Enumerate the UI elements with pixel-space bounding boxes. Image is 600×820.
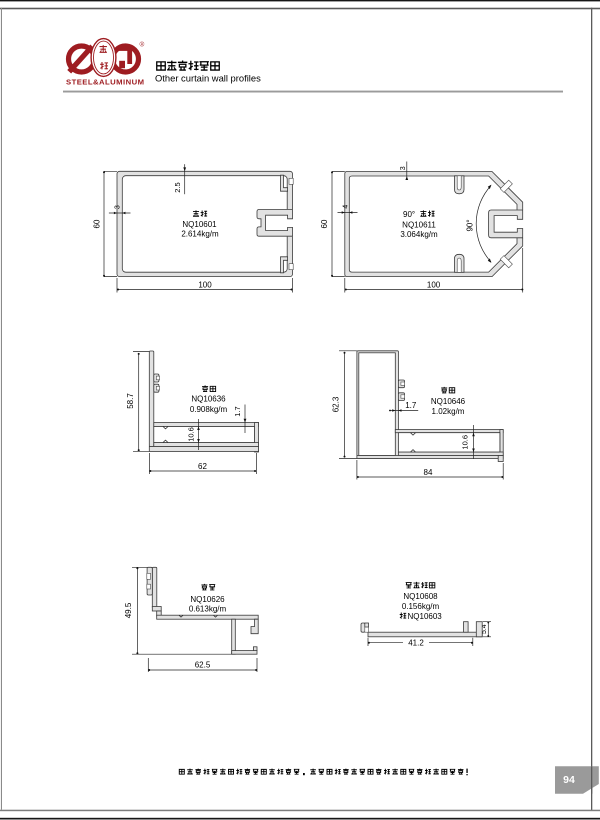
svg-text:84: 84 [424, 468, 433, 477]
svg-text:3: 3 [115, 205, 122, 209]
svg-text:60: 60 [93, 219, 102, 228]
svg-text:10.6: 10.6 [187, 427, 196, 442]
svg-text:NQ10601: NQ10601 [182, 220, 217, 229]
svg-text:1.02kg/m: 1.02kg/m [432, 407, 465, 416]
svg-text:62: 62 [198, 462, 207, 471]
svg-text:2.5: 2.5 [173, 182, 182, 192]
svg-text:1.7: 1.7 [233, 406, 242, 416]
svg-text:3.064kg/m: 3.064kg/m [400, 230, 438, 239]
svg-text:4: 4 [342, 205, 349, 209]
svg-text:NQ10646: NQ10646 [431, 397, 466, 406]
svg-text:100: 100 [427, 280, 441, 289]
svg-text:NQ10626: NQ10626 [190, 595, 225, 604]
svg-text:0.156kg/m: 0.156kg/m [402, 602, 440, 611]
svg-text:10.6: 10.6 [460, 435, 469, 450]
svg-text:2.614kg/m: 2.614kg/m [181, 230, 219, 239]
svg-text:49.5: 49.5 [124, 602, 133, 618]
svg-text:60: 60 [320, 219, 329, 228]
svg-text:NQ10608: NQ10608 [403, 592, 438, 601]
svg-text:NQ10611: NQ10611 [402, 221, 436, 230]
svg-text:62.3: 62.3 [332, 396, 341, 412]
svg-text:®: ® [140, 41, 145, 49]
svg-text:NQ10603: NQ10603 [408, 612, 443, 621]
svg-text:100: 100 [198, 280, 212, 289]
svg-text:94: 94 [563, 774, 575, 786]
svg-text:0.908kg/m: 0.908kg/m [190, 405, 228, 414]
svg-text:90°: 90° [403, 210, 415, 219]
svg-text:Other curtain wall profiles: Other curtain wall profiles [155, 73, 261, 84]
svg-text:0.613kg/m: 0.613kg/m [189, 605, 227, 614]
svg-text:90°: 90° [465, 219, 474, 231]
svg-text:STEEL&ALUMINUM: STEEL&ALUMINUM [66, 77, 144, 86]
svg-text:NQ10636: NQ10636 [191, 395, 226, 404]
svg-text:1.7: 1.7 [405, 401, 417, 410]
svg-text:3: 3 [400, 166, 407, 170]
svg-text:41.2: 41.2 [408, 638, 424, 647]
svg-text:62.5: 62.5 [195, 660, 211, 669]
svg-text:58.7: 58.7 [126, 393, 135, 409]
